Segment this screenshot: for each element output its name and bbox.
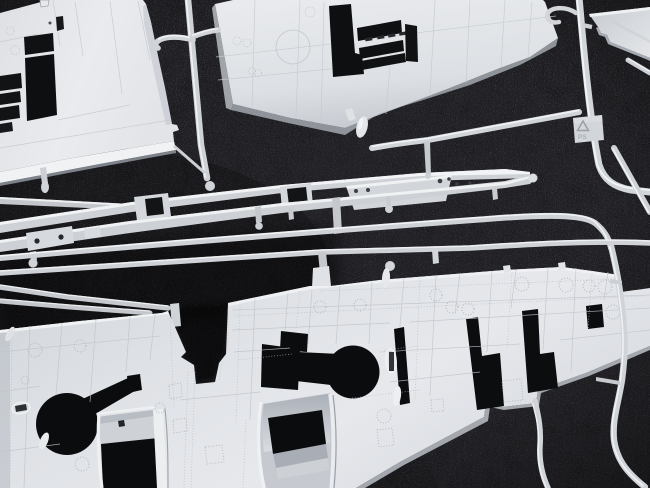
svg-text:PS: PS bbox=[578, 134, 587, 141]
